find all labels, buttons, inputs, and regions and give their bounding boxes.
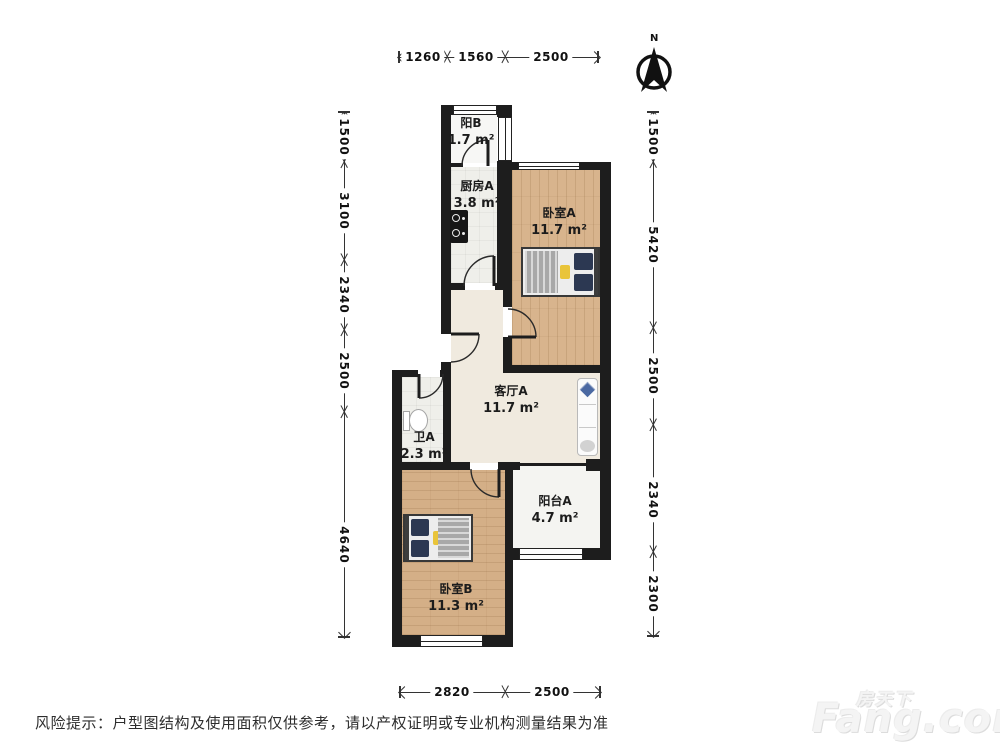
stove-burner xyxy=(452,214,460,222)
wall xyxy=(503,283,512,307)
bed-headboard xyxy=(594,249,598,295)
bed-pillow xyxy=(411,540,429,557)
bed-pillow xyxy=(574,253,593,270)
wall xyxy=(440,370,451,377)
wall-balcony-a-divider xyxy=(520,463,588,466)
dim-tick xyxy=(646,321,660,335)
wall xyxy=(392,635,420,647)
dim-value: 2300 xyxy=(646,571,660,616)
room-label-living-a: 客厅A 11.7 m² xyxy=(483,382,539,416)
wall xyxy=(497,105,512,117)
wall xyxy=(583,548,611,560)
north-arrow-icon xyxy=(630,42,680,97)
room-label-kitchen-a: 厨房A 3.8 m² xyxy=(454,177,501,211)
dim-value: 1500 xyxy=(337,114,351,159)
stove-knob xyxy=(462,217,465,220)
dim-value: 3100 xyxy=(337,188,351,233)
wall xyxy=(483,635,513,647)
stove-burner xyxy=(452,229,460,237)
wall-bedroom-b-right xyxy=(505,462,513,647)
wall-balcony-b-divider xyxy=(451,163,463,167)
dim-tick xyxy=(498,685,512,699)
floorplan-page: 阳B 1.7 m² 厨房A 3.8 m² 卧室A 11.7 m² 客厅A 11.… xyxy=(0,0,1000,750)
dim-value: 2340 xyxy=(646,477,660,522)
dim-tick xyxy=(646,418,660,432)
room-label-balcony-b: 阳B 1.7 m² xyxy=(448,114,495,148)
dim-value: 1560 xyxy=(454,50,497,64)
dim-value: 2820 xyxy=(430,685,473,699)
dim-tick xyxy=(646,545,660,559)
wall xyxy=(441,362,451,370)
dim-tick xyxy=(337,253,351,267)
dim-value: 2500 xyxy=(530,685,573,699)
risk-disclaimer: 风险提示：户型图结构及使用面积仅供参考，请以产权证明或专业机构测量结果为准 xyxy=(35,712,609,733)
room-label-bedroom-b: 卧室B 11.3 m² xyxy=(428,580,484,614)
wall-lower-left xyxy=(392,370,402,647)
bed-pillow xyxy=(411,519,429,536)
bed-headboard xyxy=(405,516,409,560)
window-bedroom-b xyxy=(420,635,483,647)
dim-value: 4640 xyxy=(337,522,351,567)
dim-tick xyxy=(337,323,351,337)
dim-value: 1260 xyxy=(401,50,444,64)
room-label-balcony-a: 阳台A 4.7 m² xyxy=(532,492,579,526)
dim-tick xyxy=(337,405,351,419)
bed-pillow xyxy=(574,274,593,291)
room-label-bedroom-a: 卧室A 11.7 m² xyxy=(531,204,587,238)
room-label-bath-a: 卫A 2.3 m² xyxy=(401,428,448,462)
wall-kitchen-bottom xyxy=(441,283,465,290)
sofa-seam xyxy=(579,404,596,405)
dim-tick xyxy=(498,50,512,64)
bed-bedroom-b xyxy=(403,514,473,562)
watermark-brand-en: Fang.com xyxy=(812,696,1000,742)
window-balcony-a xyxy=(519,548,583,560)
wall-bedroom-b-top xyxy=(392,462,470,470)
stove-knob xyxy=(462,232,465,235)
bed-accent-pillow xyxy=(560,265,570,279)
dim-value: 2500 xyxy=(646,353,660,398)
bed-blanket xyxy=(438,518,469,558)
window-balcony-b-right xyxy=(498,117,512,161)
sofa-seam xyxy=(579,427,596,428)
sofa-living-room xyxy=(577,378,598,456)
living-a-hall-floor xyxy=(451,290,503,463)
dim-value: 2500 xyxy=(529,50,572,64)
wall xyxy=(586,459,602,471)
sofa-pillow xyxy=(580,382,596,398)
wall-bedroom-a-top xyxy=(503,162,518,170)
wall-right-main xyxy=(600,162,611,560)
bed-blanket xyxy=(525,251,558,293)
dim-value: 2340 xyxy=(337,272,351,317)
window-bedroom-a xyxy=(518,162,580,170)
bed-bedroom-a xyxy=(521,247,600,297)
sofa-armrest xyxy=(580,440,595,452)
stove-icon xyxy=(450,210,468,243)
dim-value: 1500 xyxy=(646,114,660,159)
dim-value: 2500 xyxy=(337,348,351,393)
wall-bedroom-a-bottom xyxy=(503,365,611,373)
dim-arrow-right xyxy=(588,51,601,64)
dim-value: 5420 xyxy=(646,222,660,267)
